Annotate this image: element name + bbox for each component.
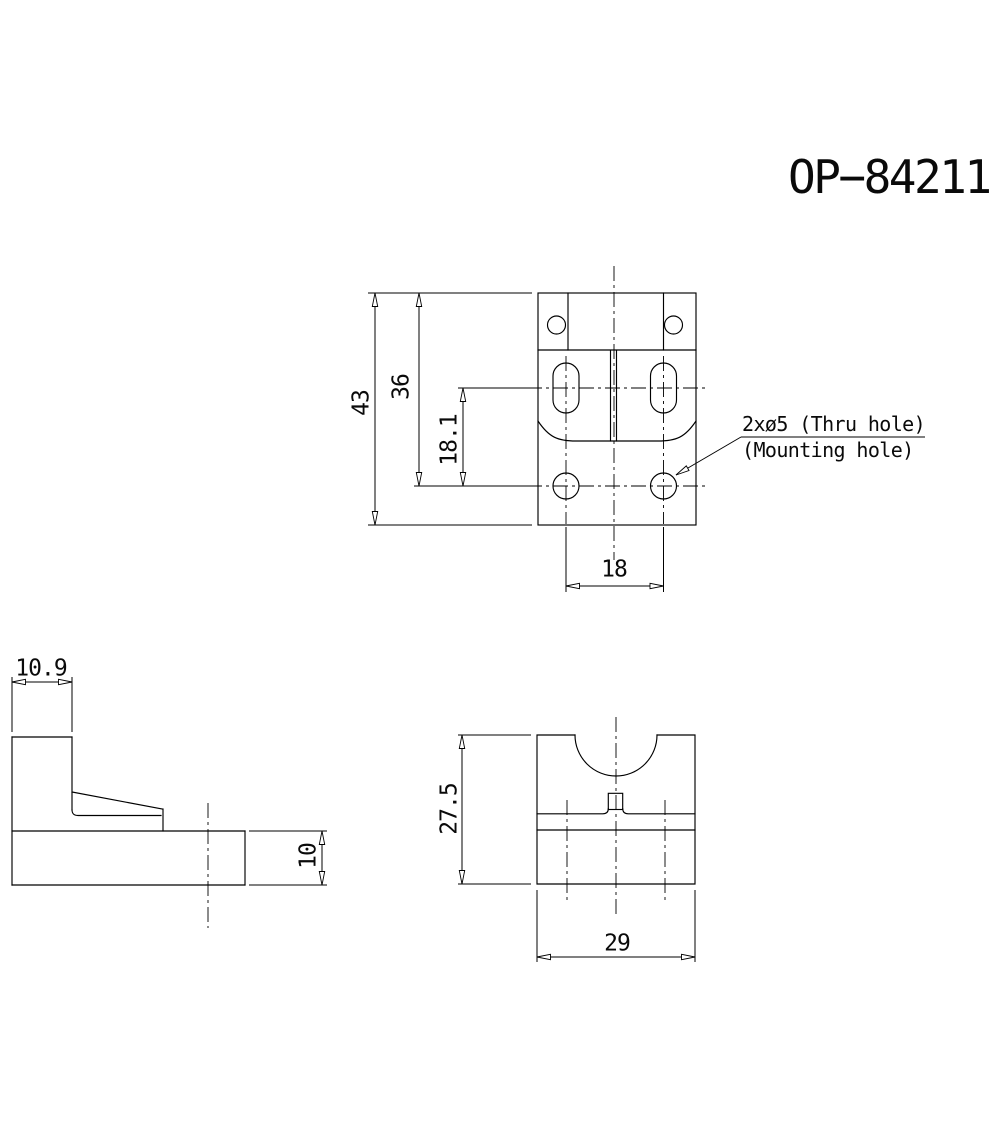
- leader-arrow: [676, 437, 741, 475]
- callout-text-line2: (Mounting hole): [742, 440, 914, 460]
- top-view-dimensions: [368, 293, 664, 592]
- front-view-dimensions: [458, 735, 695, 962]
- dim-label-43: 43: [351, 390, 374, 416]
- dim-label-10: 10: [298, 843, 321, 869]
- callout-text-line1: 2xø5 (Thru hole): [742, 414, 925, 434]
- tapered-edge: [72, 792, 162, 809]
- dim-label-18-1: 18.1: [439, 414, 462, 465]
- drawing-sheet: OP−84211 2xø5 (Thru hole) (Mounting hole…: [0, 0, 1000, 1122]
- dim-label-27-5: 27.5: [439, 783, 462, 834]
- side-view-outline: [12, 737, 245, 885]
- dim-label-18: 18: [601, 559, 627, 582]
- dim-label-29: 29: [604, 933, 630, 956]
- pilot-hole-left: [548, 316, 566, 334]
- top-view-outline: [538, 293, 696, 525]
- dim-label-10-9: 10.9: [15, 658, 66, 681]
- front-view: [458, 717, 695, 962]
- front-view-centerlines: [567, 717, 665, 917]
- side-view: [12, 677, 327, 928]
- dim-label-36: 36: [391, 374, 414, 400]
- center-tab: [608, 793, 622, 809]
- drawing-number: OP−84211: [788, 154, 990, 200]
- pilot-hole-right: [665, 316, 683, 334]
- side-view-dimensions: [12, 677, 327, 885]
